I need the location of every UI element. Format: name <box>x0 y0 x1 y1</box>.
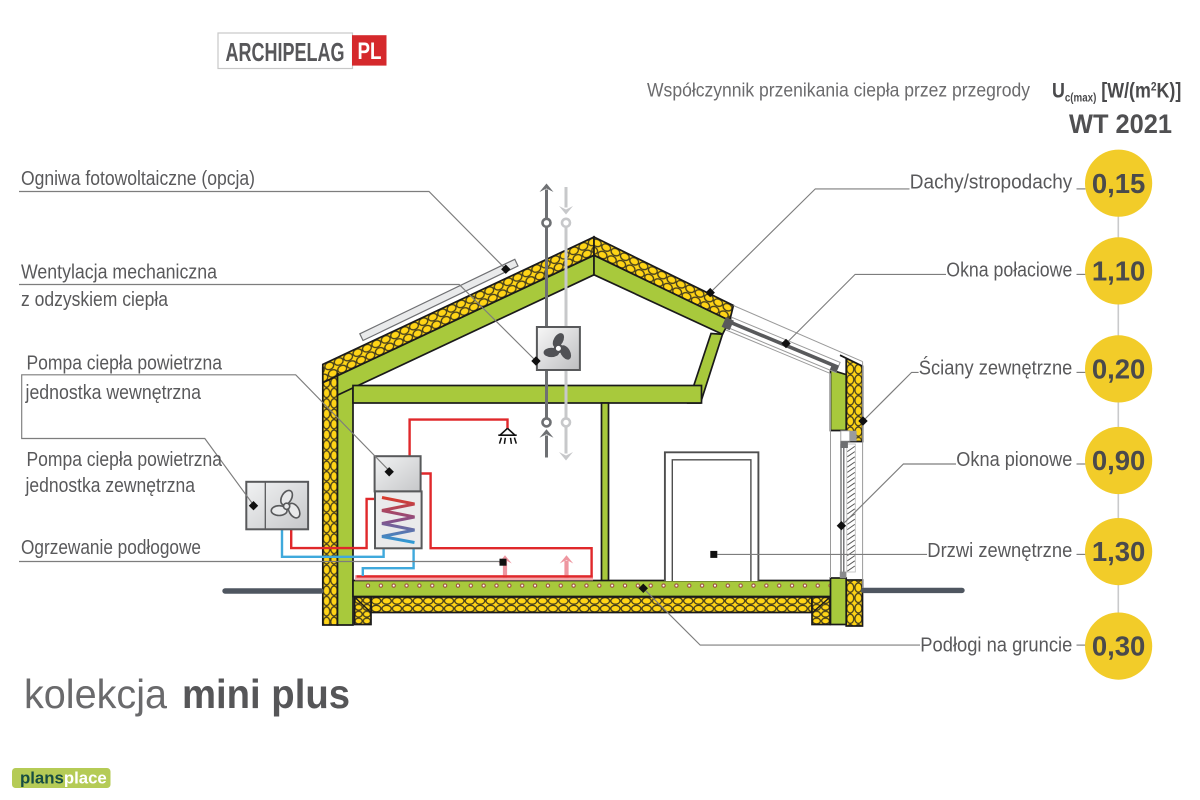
svg-text:Uc(max) [W/(m2K)]: Uc(max) [W/(m2K)] <box>1052 79 1181 105</box>
svg-text:1,10: 1,10 <box>1092 256 1146 287</box>
svg-text:Ogrzewanie podłogowe: Ogrzewanie podłogowe <box>21 537 201 559</box>
svg-text:PL: PL <box>358 38 382 65</box>
svg-text:Okna połaciowe: Okna połaciowe <box>946 259 1072 281</box>
svg-text:z odzyskiem ciepła: z odzyskiem ciepła <box>21 289 169 311</box>
svg-text:Drzwi zewnętrzne: Drzwi zewnętrzne <box>927 540 1072 562</box>
svg-text:0,30: 0,30 <box>1092 631 1146 662</box>
svg-text:Podłogi na gruncie: Podłogi na gruncie <box>920 635 1072 657</box>
svg-text:Okna pionowe: Okna pionowe <box>956 449 1072 471</box>
svg-text:0,20: 0,20 <box>1092 354 1146 385</box>
svg-text:Wentylacja mechaniczna: Wentylacja mechaniczna <box>21 262 218 284</box>
svg-text:jednostka zewnętrzna: jednostka zewnętrzna <box>25 475 196 497</box>
svg-text:0,90: 0,90 <box>1092 445 1146 476</box>
svg-text:kolekcjamini plus: kolekcjamini plus <box>24 671 350 717</box>
svg-text:ARCHIPELAG: ARCHIPELAG <box>226 37 345 67</box>
svg-text:0,15: 0,15 <box>1092 168 1146 199</box>
svg-text:Ściany zewnętrzne: Ściany zewnętrzne <box>919 355 1073 379</box>
svg-text:Dachy/stropodachy: Dachy/stropodachy <box>910 172 1073 194</box>
svg-text:Pompa ciepła powietrzna: Pompa ciepła powietrzna <box>27 353 223 375</box>
svg-text:jednostka wewnętrzna: jednostka wewnętrzna <box>25 382 202 404</box>
svg-text:1,30: 1,30 <box>1092 536 1146 567</box>
svg-text:Współczynnik przenikania ciepł: Współczynnik przenikania ciepła przez pr… <box>647 80 1030 102</box>
svg-text:plansplace: plansplace <box>20 769 107 788</box>
svg-text:Ogniwa fotowoltaiczne (opcja): Ogniwa fotowoltaiczne (opcja) <box>21 168 255 190</box>
svg-text:WT 2021: WT 2021 <box>1069 109 1172 139</box>
svg-text:Pompa ciepła powietrzna: Pompa ciepła powietrzna <box>27 449 223 471</box>
